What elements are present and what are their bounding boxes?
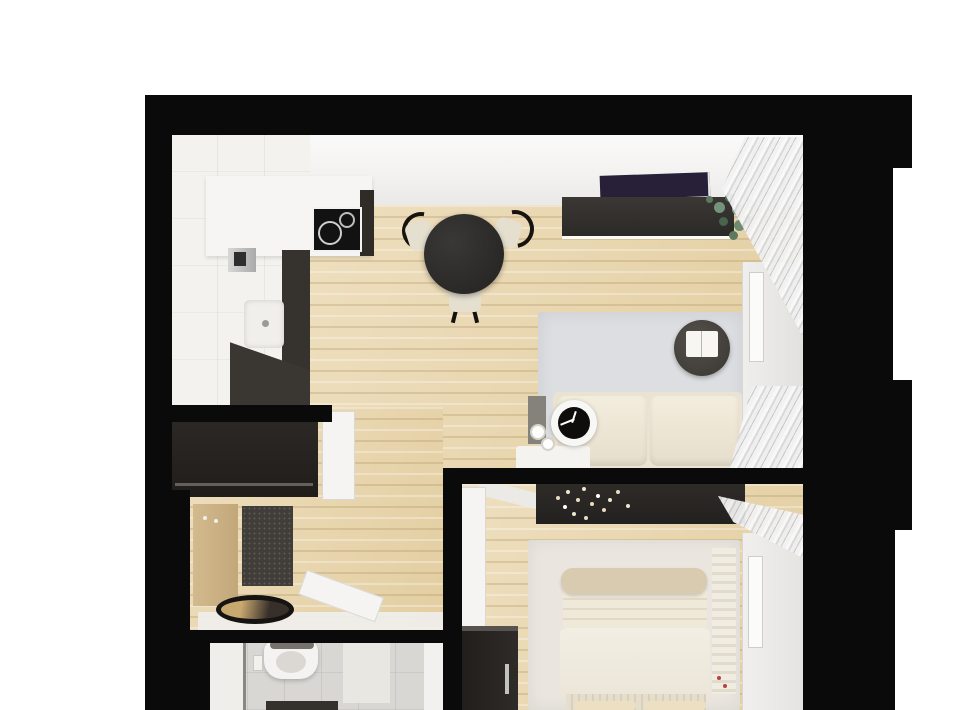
- blanket-roll: [561, 568, 707, 594]
- wall-left: [145, 95, 172, 710]
- tv-screen: [600, 172, 711, 200]
- bath-vanity-edge: [266, 701, 338, 710]
- coat-panel: [193, 504, 238, 606]
- kitchen-cabinet-front-vertical: [282, 250, 310, 374]
- faucet-handle: [234, 252, 246, 266]
- bedroom-mirror: [748, 556, 763, 648]
- bedroom-dresser: [462, 626, 518, 710]
- plant: [706, 196, 713, 203]
- duvet-main: [560, 628, 710, 698]
- burner-ring-small: [339, 212, 355, 228]
- shower-panel: [343, 643, 390, 703]
- wall-kitchen-hall: [145, 405, 332, 422]
- pillow-right: [644, 701, 706, 710]
- flush-plate: [253, 655, 263, 671]
- bathroom-left-panel: [210, 643, 243, 710]
- wall-hall-bathroom: [145, 630, 462, 643]
- coat-hooks: [203, 516, 207, 520]
- bathroom-right-panel: [424, 643, 443, 710]
- wall-notch-lower: [895, 530, 912, 710]
- throw-runner: [712, 548, 736, 694]
- wall-living-bedroom: [443, 468, 803, 484]
- dresser-handle: [505, 664, 509, 694]
- cup-2: [541, 437, 555, 451]
- duvet-pleats: [563, 590, 707, 632]
- toilet-seat: [276, 651, 306, 673]
- burner-ring-large: [318, 221, 342, 245]
- pillow-left: [574, 701, 636, 710]
- bedroom-open-door: [459, 487, 486, 627]
- book-spine: [701, 331, 702, 357]
- console-flowers: [556, 496, 560, 500]
- dining-table: [424, 214, 504, 294]
- hall-open-door: [322, 411, 355, 500]
- open-book: [686, 331, 718, 357]
- sink-drain: [262, 320, 269, 327]
- floor-plan-render: [0, 0, 960, 710]
- wall-hall-left-sliver: [172, 490, 190, 630]
- sofa-cushion-right: [650, 396, 739, 466]
- floor-mirror-oval: [216, 595, 294, 624]
- wall-notch-upper: [893, 168, 912, 380]
- wall-bedroom-left: [443, 468, 462, 710]
- counter-side-panel: [360, 190, 374, 256]
- throw-berries: [717, 676, 721, 680]
- shower-glass-seam: [243, 643, 246, 710]
- living-mirror: [749, 272, 764, 362]
- wall-bathroom-left-block: [172, 643, 210, 710]
- bed-head-console: [536, 484, 745, 524]
- tv-sideboard: [562, 197, 734, 239]
- door-mat: [242, 506, 293, 586]
- hall-wardrobe-edge: [175, 483, 313, 486]
- wall-top: [145, 95, 912, 135]
